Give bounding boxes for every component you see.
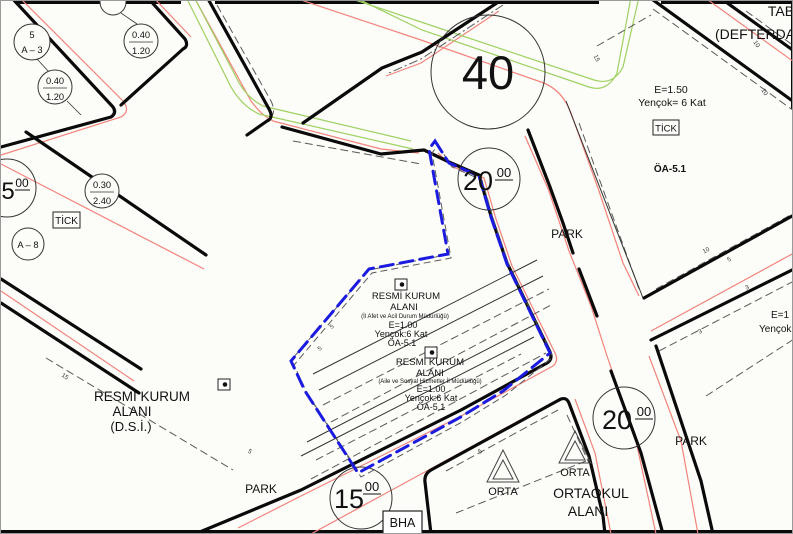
road-width-5-left: 5 [1,178,14,205]
dsi-area-line3: (D.S.İ.) [110,419,151,434]
school-area-line1: ORTAOKUL [553,485,629,501]
setback-dimension: 10 [702,246,712,256]
road-width-20-top: 20 [463,166,493,196]
road-width-texts: 40 20 00 20 00 15 00 5 00 [1,46,653,514]
parcel-circle-ratio2-top: 0.40 [132,30,150,40]
setback-dimension: 5 [477,448,484,456]
road-edge-red-lines [1,1,793,534]
setback-dimension: 15 [592,54,602,64]
corner-block-line2: (DEFTERDA [715,26,793,42]
setback-dimension: 5 [726,256,733,264]
parcel-circle-ratio3-top: 0.30 [93,180,111,190]
road-width-20-right: 20 [602,405,632,435]
bha-label: BHA [390,516,416,530]
right-edge-block-line2: Yençok [759,324,792,335]
park-right-label: PARK [675,434,707,448]
park-lower-label: PARK [245,482,277,496]
commercial-block-line1: E=1.50 [654,84,688,96]
corner-block-line1: TAB [768,3,793,19]
parcel-afad-line1: RESMİ KURUM [372,291,440,302]
setback-dimension: 5 [316,345,324,353]
parcel-aile-line6: ÖA-5.1 [417,402,446,412]
road-width-5-left-decimals: 00 [15,176,29,190]
parcel-afad-line2: ALANI [390,302,418,313]
school-area-line2: ALANI [568,503,608,519]
orta-label-1: ORTA [488,486,518,498]
road-width-40: 40 [462,46,514,99]
tick-left-label: TİCK [55,214,78,227]
right-edge-block-line1: E=1 [771,310,790,321]
parcel-afad-line3: (İl Afet ve Acil Durum Müdürlüğü) [361,313,449,320]
parcel-afad-line6: ÖA-5.1 [388,338,417,348]
setback-dimension: 5 [328,323,336,331]
road-width-15-decimals: 00 [365,479,379,494]
setback-dimension: 10 [759,87,769,97]
dsi-area-line2: ALANI [112,404,151,419]
school-triangle-icon [487,450,519,482]
institution-symbol-icon [395,279,407,290]
map-canvas[interactable]: 5 A – 3 0.40 1.20 0.40 1.20 0.30 2.40 A … [1,1,793,534]
parcel-circle-a3-top: 5 [29,30,34,40]
parcel-circle-a8-label: A – 8 [17,240,38,250]
institution-symbol-icon [218,379,230,390]
park-upper-label: PARK [551,227,583,241]
parcel-aile-line2: ALANI [416,368,444,379]
parcel-circle-ratio2-bottom: 1.20 [132,46,150,56]
parcel-circle-ratio1-bottom: 1.20 [46,92,64,102]
green-median-lines [186,1,639,149]
commercial-block-line2: Yençok= 6 Kat [638,97,706,109]
commercial-block-line3: ÖA-5.1 [654,162,687,175]
road-width-20-top-decimals: 00 [497,165,511,180]
area-labels: RESMİ KURUM ALANI (D.S.İ.) RESMİ KURUM A… [94,3,793,519]
setback-dimension: 15 [60,372,70,382]
zoning-plan-map: 5 A – 3 0.40 1.20 0.40 1.20 0.30 2.40 A … [0,0,793,534]
parcel-circle-a3-bottom: A – 3 [21,45,42,55]
parcel-circle [100,1,126,15]
plan-boundary-highlight [291,141,550,473]
orta-label-2: ORTA [560,467,590,479]
parcel-aile-line1: RESMİ KURUM [396,357,464,368]
parcel-circle-ratio3-bottom: 2.40 [93,196,111,206]
setback-dimension: 5 [246,448,253,456]
road-width-15: 15 [334,484,364,514]
tick-right-label: TİCK [655,124,677,135]
block-edges-black [1,1,793,534]
road-width-20-right-decimals: 00 [637,404,651,419]
dsi-area-line1: RESMİ KURUM [94,389,190,404]
parcel-circle-ratio1-top: 0.40 [46,76,64,86]
